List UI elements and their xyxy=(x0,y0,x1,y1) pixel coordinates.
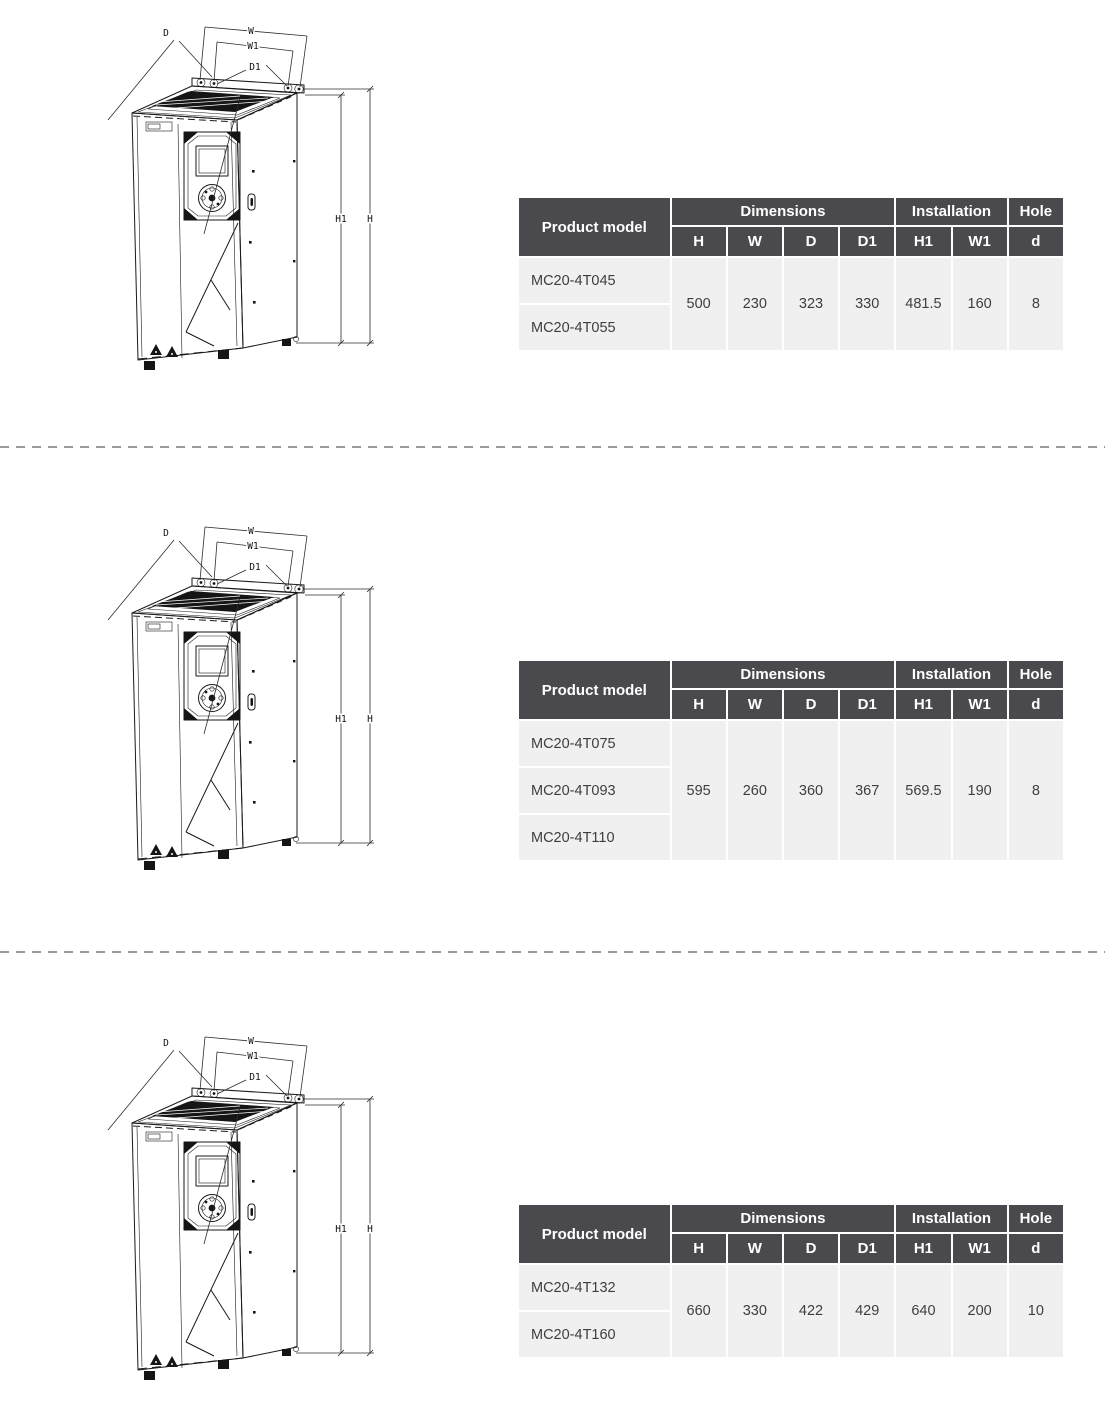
header-d1: D1 xyxy=(840,690,894,719)
cabinet-drawing-1 xyxy=(100,10,390,388)
header-h: H xyxy=(672,1234,726,1263)
manual-page: Product model Dimensions Installation Ho… xyxy=(0,0,1105,1423)
header-product-model: Product model xyxy=(519,198,670,256)
model-cell: MC20-4T132 xyxy=(519,1265,670,1310)
header-d-hole: d xyxy=(1009,1234,1063,1263)
spec-table-1: Product model Dimensions Installation Ho… xyxy=(517,196,1065,352)
header-w1: W1 xyxy=(953,1234,1007,1263)
header-d-hole: d xyxy=(1009,227,1063,256)
header-d: D xyxy=(784,227,838,256)
table-row: MC20-4T045 500 230 323 330 481.5 160 8 xyxy=(519,258,1063,303)
value-h: 660 xyxy=(672,1265,726,1357)
header-d1: D1 xyxy=(840,227,894,256)
value-w: 230 xyxy=(728,258,782,350)
header-dimensions: Dimensions xyxy=(672,198,895,225)
header-h: H xyxy=(672,227,726,256)
header-h1: H1 xyxy=(896,1234,950,1263)
header-hole: Hole xyxy=(1009,1205,1063,1232)
spec-table-2: Product model Dimensions Installation Ho… xyxy=(517,659,1065,862)
cabinet-drawing-3 xyxy=(100,1020,390,1398)
value-d-hole: 10 xyxy=(1009,1265,1063,1357)
value-h: 595 xyxy=(672,721,726,860)
value-d-hole: 8 xyxy=(1009,258,1063,350)
header-h1: H1 xyxy=(896,227,950,256)
spec-table-3: Product model Dimensions Installation Ho… xyxy=(517,1203,1065,1359)
header-w1: W1 xyxy=(953,690,1007,719)
value-w: 260 xyxy=(728,721,782,860)
model-cell: MC20-4T055 xyxy=(519,305,670,350)
value-d: 422 xyxy=(784,1265,838,1357)
header-h1: H1 xyxy=(896,690,950,719)
value-w1: 190 xyxy=(953,721,1007,860)
header-d-hole: d xyxy=(1009,690,1063,719)
header-w: W xyxy=(728,1234,782,1263)
header-installation: Installation xyxy=(896,661,1006,688)
value-d: 323 xyxy=(784,258,838,350)
header-product-model: Product model xyxy=(519,661,670,719)
header-dimensions: Dimensions xyxy=(672,1205,895,1232)
value-d-hole: 8 xyxy=(1009,721,1063,860)
value-h1: 481.5 xyxy=(896,258,950,350)
header-dimensions: Dimensions xyxy=(672,661,895,688)
header-product-model: Product model xyxy=(519,1205,670,1263)
header-h: H xyxy=(672,690,726,719)
value-d: 360 xyxy=(784,721,838,860)
dashed-separator-2 xyxy=(0,951,1105,953)
header-w: W xyxy=(728,227,782,256)
value-d1: 429 xyxy=(840,1265,894,1357)
header-d: D xyxy=(784,690,838,719)
header-d1: D1 xyxy=(840,1234,894,1263)
cabinet-drawing-2 xyxy=(100,510,390,888)
value-h1: 640 xyxy=(896,1265,950,1357)
value-h1: 569.5 xyxy=(896,721,950,860)
value-d1: 330 xyxy=(840,258,894,350)
value-w1: 160 xyxy=(953,258,1007,350)
value-d1: 367 xyxy=(840,721,894,860)
table-row: MC20-4T132 660 330 422 429 640 200 10 xyxy=(519,1265,1063,1310)
header-w: W xyxy=(728,690,782,719)
value-w1: 200 xyxy=(953,1265,1007,1357)
value-h: 500 xyxy=(672,258,726,350)
model-cell: MC20-4T160 xyxy=(519,1312,670,1357)
model-cell: MC20-4T093 xyxy=(519,768,670,813)
header-hole: Hole xyxy=(1009,661,1063,688)
model-cell: MC20-4T075 xyxy=(519,721,670,766)
value-w: 330 xyxy=(728,1265,782,1357)
dashed-separator-1 xyxy=(0,446,1105,448)
header-installation: Installation xyxy=(896,198,1006,225)
header-w1: W1 xyxy=(953,227,1007,256)
header-installation: Installation xyxy=(896,1205,1006,1232)
model-cell: MC20-4T110 xyxy=(519,815,670,860)
model-cell: MC20-4T045 xyxy=(519,258,670,303)
header-d: D xyxy=(784,1234,838,1263)
table-row: MC20-4T075 595 260 360 367 569.5 190 8 xyxy=(519,721,1063,766)
header-hole: Hole xyxy=(1009,198,1063,225)
